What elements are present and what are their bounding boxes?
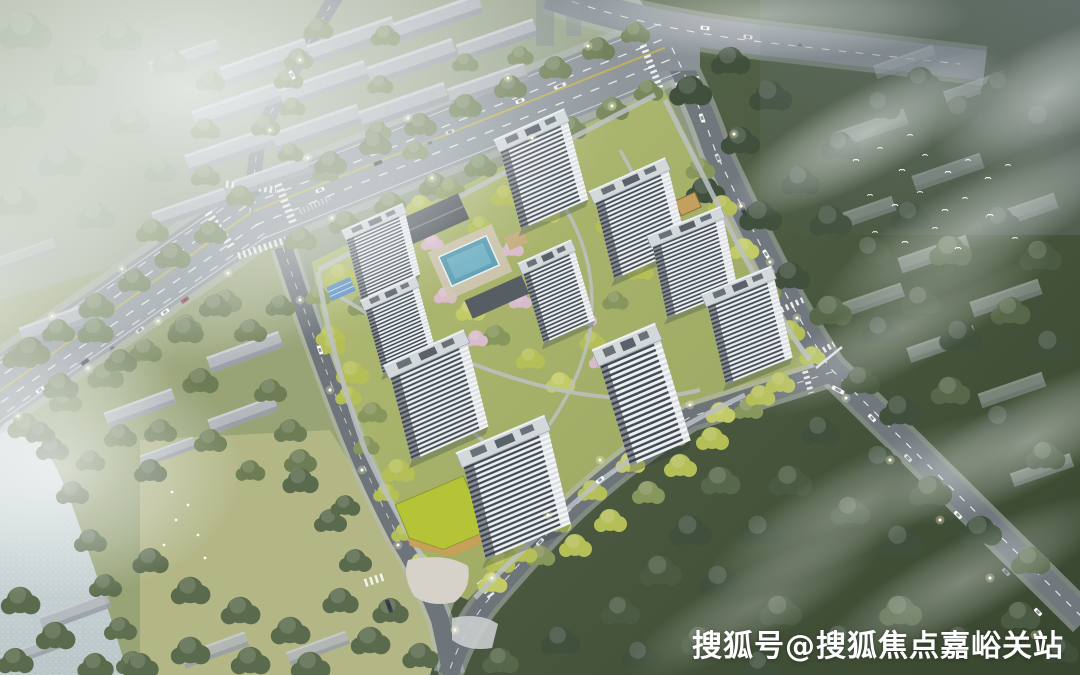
aerial-rendering: 搜狐号@搜狐焦点嘉峪关站: [0, 0, 1080, 675]
entrance-plaza: [406, 557, 469, 604]
plaza-pavers: [452, 616, 498, 649]
scene-canvas: [0, 0, 1080, 675]
sohu-watermark: 搜狐号@搜狐焦点嘉峪关站: [692, 621, 1064, 665]
